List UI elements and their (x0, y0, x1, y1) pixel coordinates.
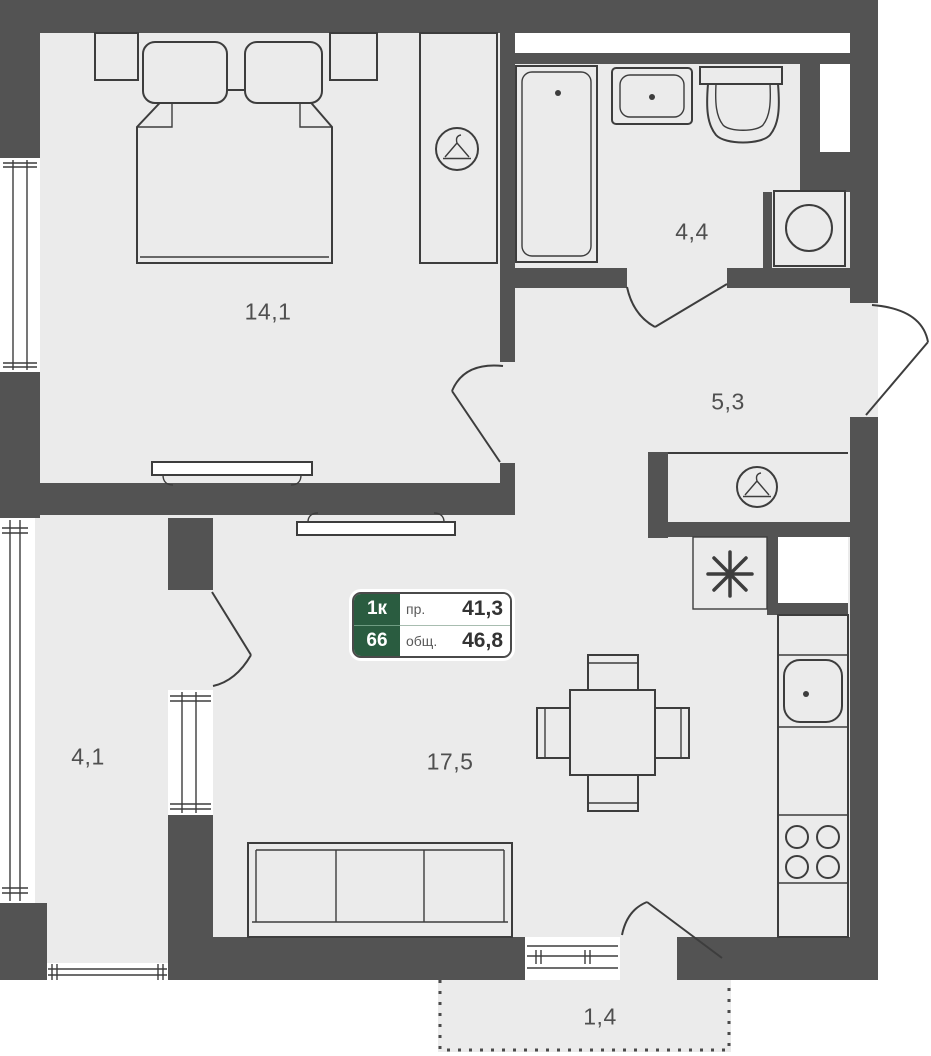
bedroom-window (0, 158, 40, 372)
sofa (248, 843, 512, 937)
shaft-channel (512, 33, 850, 53)
dining-table (570, 690, 655, 775)
wall-segment (850, 0, 878, 303)
floor-plan-drawing (0, 0, 931, 1056)
bedroom-wardrobe (420, 33, 497, 263)
shaft-top-right (820, 53, 850, 152)
total-area-value: 46,8 (462, 629, 503, 653)
wall-segment (168, 937, 525, 980)
floor-plan-page: 14,1 4,4 5,3 4,1 17,5 1,4 1к 66 пр. 41,3… (0, 0, 931, 1056)
entrance-gap (850, 303, 878, 417)
wall-segment (168, 518, 213, 590)
wall-segment (800, 64, 820, 168)
wall-segment (500, 33, 515, 362)
bathroom-sink (612, 68, 692, 124)
wall-segment (763, 192, 772, 268)
pillow (143, 42, 227, 103)
washing-machine (774, 191, 845, 266)
chair (655, 708, 689, 758)
loggia-window-left (0, 518, 30, 903)
living-area-label: пр. (406, 601, 425, 617)
total-area-label: общ. (406, 633, 437, 649)
room-area-living-kitchen: 17,5 (427, 749, 474, 776)
living-area-value: 41,3 (462, 597, 503, 621)
balcony-door-gap (620, 937, 677, 980)
kitchen-counter (778, 615, 848, 937)
badge-green-column: 1к 66 (354, 594, 400, 656)
chair (588, 655, 638, 690)
wall-segment (800, 168, 850, 192)
wall-segment (727, 268, 850, 288)
wall-segment (0, 483, 515, 515)
chair (588, 775, 638, 811)
room-area-loggia: 4,1 (71, 744, 104, 771)
wall-segment (850, 417, 878, 980)
loggia-floor (35, 937, 168, 963)
room-area-hallway: 5,3 (711, 389, 744, 416)
badge-areas-column: пр. 41,3 общ. 46,8 (400, 594, 510, 656)
room-area-bedroom: 14,1 (245, 299, 292, 326)
loggia-window-bottom (47, 963, 168, 981)
wall-segment (820, 152, 850, 168)
wall-segment (767, 603, 848, 615)
wall-segment (0, 0, 878, 33)
balcony-window (525, 937, 620, 980)
bed (137, 90, 332, 263)
nightstand (330, 33, 377, 80)
pillow (245, 42, 322, 103)
wall-segment (512, 53, 850, 64)
snowflake-icon (708, 552, 752, 596)
living-area-row: пр. 41,3 (400, 594, 510, 625)
apartment-info-badge: 1к 66 пр. 41,3 общ. 46,8 (352, 592, 512, 658)
wall-segment (0, 903, 47, 980)
nightstand (95, 33, 138, 80)
wall-segment (677, 937, 878, 980)
chair (537, 708, 570, 758)
total-area-row: общ. 46,8 (400, 625, 510, 657)
shower-tray (516, 66, 597, 262)
shaft-kitchen (778, 537, 848, 603)
room-area-bathroom: 4,4 (675, 219, 708, 246)
unit-number: 66 (354, 625, 400, 657)
rooms-count: 1к (354, 594, 400, 625)
loggia-window-right (168, 690, 213, 815)
wall-segment (0, 33, 40, 158)
room-area-balcony: 1,4 (583, 1004, 616, 1031)
wall-segment (500, 463, 515, 515)
wall-segment (500, 268, 627, 288)
wall-segment (648, 522, 850, 537)
